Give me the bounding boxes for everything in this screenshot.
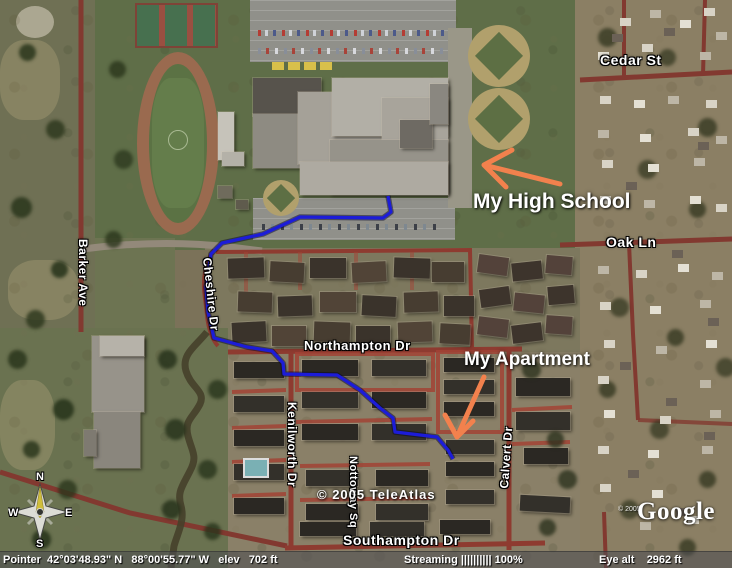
compass-south-label: S [36,538,43,548]
google-logo: © 2005 Google [615,498,732,538]
route-layer [0,0,732,568]
route-path-outline [206,196,453,459]
imagery-copyright: © 2005 TeleAtlas [317,487,436,502]
status-bar: Pointer 42°03'48.93" N 88°00'55.77" W el… [0,551,732,568]
annotation-my-apartment: My Apartment [464,349,590,371]
arrow-apartment [445,377,484,437]
street-label-barker: Barker Ave [76,239,90,306]
compass-center [37,509,44,516]
satellite-map[interactable]: Cedar St Oak Ln Barker Ave Cheshire Dr N… [0,0,732,568]
status-pointer-coords: Pointer 42°03'48.93" N 88°00'55.77" W el… [3,554,278,566]
google-logo-text: Google [637,498,715,526]
compass-west-label: W [8,507,19,519]
route-path [206,196,453,459]
arrow-high-school [484,150,560,187]
status-eye-altitude: Eye alt 2962 ft [599,554,682,566]
annotation-my-high-school: My High School [473,190,631,214]
compass-rose[interactable]: N W E S [8,470,72,548]
street-label-cedar: Cedar St [600,52,662,68]
street-label-northampton: Northampton Dr [304,338,411,353]
street-label-southampton: Southampton Dr [343,532,460,548]
compass-east-label: E [65,507,72,519]
status-streaming: Streaming |||||||||| 100% [404,554,523,566]
street-label-oak: Oak Ln [606,234,656,250]
street-label-kenilworth: Kenilworth Dr [285,402,299,487]
compass-north-label: N [36,471,44,483]
